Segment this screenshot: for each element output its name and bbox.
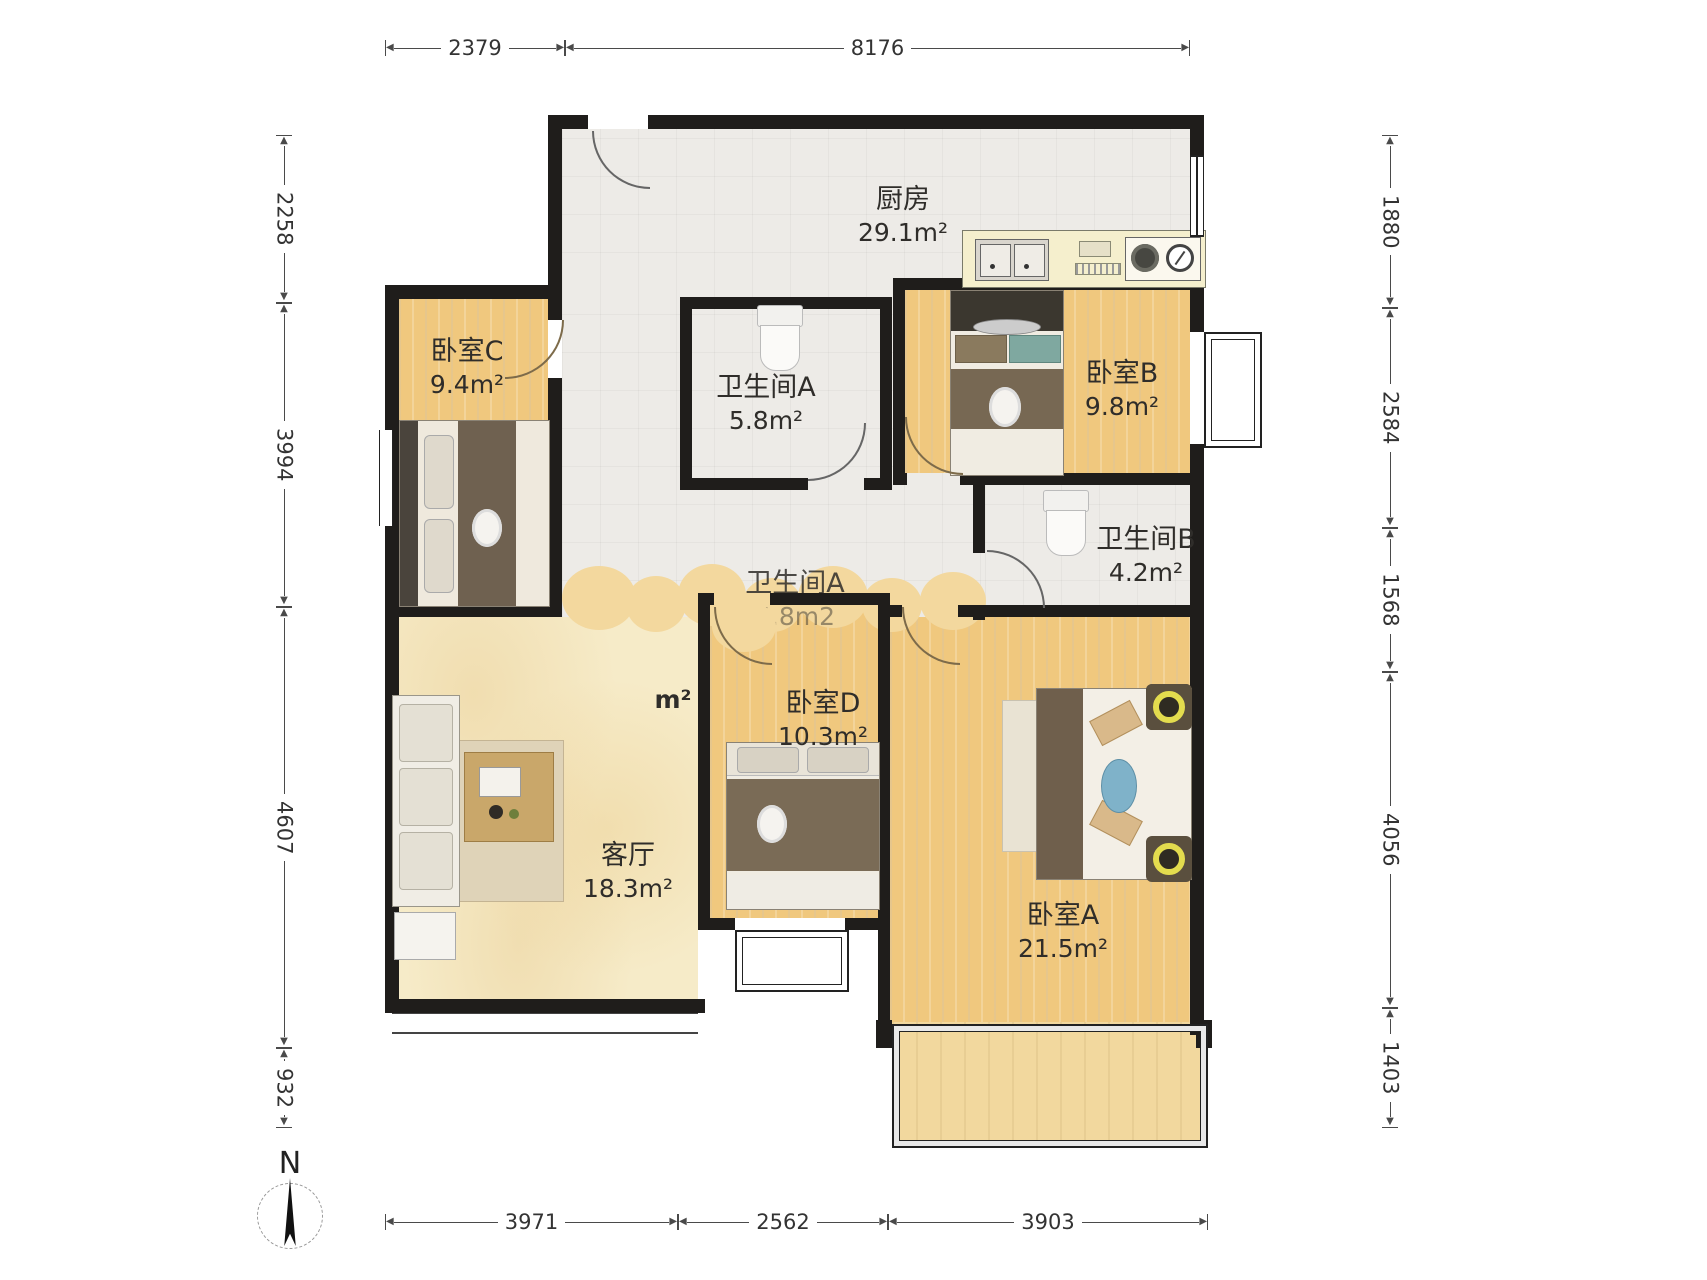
compass: N [252, 1146, 328, 1249]
compass-circle [257, 1183, 323, 1249]
room-label-bedroom-c: 卧室C9.4m² [430, 334, 504, 402]
dimension-left-1: ▲ 2258 ▼ [276, 135, 292, 303]
wall-segment [1190, 115, 1204, 155]
wall-segment [698, 918, 735, 930]
wall-segment [680, 297, 692, 490]
balcony-window-frame [892, 1024, 1208, 1148]
bedroom-c-window [379, 430, 393, 526]
dimension-value: 2584 [1380, 384, 1401, 451]
dimension-value: 1880 [1380, 188, 1401, 255]
partial-area-label: m² [655, 684, 692, 717]
dimension-value: 3903 [1014, 1212, 1081, 1233]
dimension-value: 4056 [1380, 806, 1401, 873]
dimension-value: 4607 [274, 794, 295, 861]
bedroom-b-bay-window [1204, 332, 1262, 448]
bed-icon [950, 290, 1064, 476]
bed-icon [399, 420, 550, 607]
wall-segment [680, 478, 808, 490]
dimension-value: 3994 [274, 421, 295, 488]
dimension-right-1: ▲ 1880 ▼ [1382, 135, 1398, 308]
dimension-value: 2562 [749, 1212, 816, 1233]
sofa-icon [392, 695, 460, 907]
wall-segment [548, 285, 562, 320]
wall-segment [770, 593, 890, 605]
dimension-bottom-2: ◀ 2562 ▶ [678, 1214, 888, 1230]
room-label-bathroom-a: 卫生间A5.8m² [716, 370, 815, 438]
dimension-value: 2379 [441, 38, 508, 59]
wall-segment [385, 285, 562, 299]
dimension-value: 8176 [844, 38, 911, 59]
bed-corner-ornament-icon [1146, 836, 1192, 882]
room-label-living-room: 客厅18.3m² [583, 838, 673, 906]
dimension-bottom-1: ◀ 3971 ▶ [385, 1214, 678, 1230]
wall-segment [893, 285, 905, 485]
grill-icon [1075, 263, 1121, 275]
wall-segment [973, 473, 985, 553]
wall-segment [648, 115, 1204, 129]
bedroom-c-door-arc [505, 320, 564, 379]
dimension-value: 1403 [1380, 1034, 1401, 1101]
room-label-bedroom-b: 卧室B9.8m² [1085, 356, 1159, 424]
dimension-value: 3971 [498, 1212, 565, 1233]
room-label-bathroom-b: 卫生间B4.2m² [1096, 522, 1196, 590]
wall-segment [880, 297, 892, 490]
dimension-value: 932 [274, 1061, 295, 1115]
dimension-right-2: ▲ 2584 ▼ [1382, 308, 1398, 528]
toilet-icon [1043, 490, 1087, 556]
north-arrow-icon [281, 1178, 299, 1246]
kitchen-window [1190, 155, 1204, 237]
dimension-right-4: ▲ 4056 ▼ [1382, 672, 1398, 1008]
wall-segment [864, 478, 892, 490]
dimension-right-5: ▲ 1403 ▼ [1382, 1008, 1398, 1128]
dimension-left-2: ▲ 3994 ▼ [276, 303, 292, 607]
bed-corner-ornament-icon [1146, 684, 1192, 730]
toilet-icon [757, 305, 801, 371]
dimension-left-3: ▲ 4607 ▼ [276, 607, 292, 1048]
compass-north-label: N [252, 1146, 328, 1181]
ottoman [394, 912, 456, 960]
wall-segment [548, 378, 562, 617]
room-label-bedroom-a: 卧室A21.5m² [1018, 898, 1108, 966]
bedroom-d-window [735, 930, 849, 992]
dimension-value: 1568 [1380, 566, 1401, 633]
sink-icon [975, 239, 1049, 281]
dimension-value: 2258 [274, 185, 295, 252]
wall-segment [893, 473, 907, 485]
wall-segment [385, 999, 705, 1013]
dimension-top-1: ◀ 2379 ▶ [385, 40, 565, 56]
bed-icon [726, 742, 880, 910]
stove-icon [1125, 237, 1201, 281]
floorplan-canvas: 卫生间A 5.8m2 [0, 0, 1707, 1280]
dimension-top-2: ◀ 8176 ▶ [565, 40, 1190, 56]
wall-segment [878, 918, 890, 1035]
kitchen-counter [962, 230, 1206, 288]
dimension-left-4: ▲ 932 ▼ [276, 1048, 292, 1128]
living-room-ledge [392, 1013, 698, 1034]
wall-segment [876, 1020, 892, 1048]
room-label-bedroom-d: 卧室D10.3m² [778, 686, 868, 754]
wall-segment [698, 593, 710, 930]
wall-segment [548, 115, 562, 297]
dimension-bottom-3: ◀ 3903 ▶ [888, 1214, 1208, 1230]
room-label-kitchen: 厨房29.1m² [858, 182, 948, 250]
cutting-board-icon [1079, 241, 1111, 257]
dimension-right-3: ▲ 1568 ▼ [1382, 528, 1398, 672]
coffee-table-icon [464, 752, 554, 842]
